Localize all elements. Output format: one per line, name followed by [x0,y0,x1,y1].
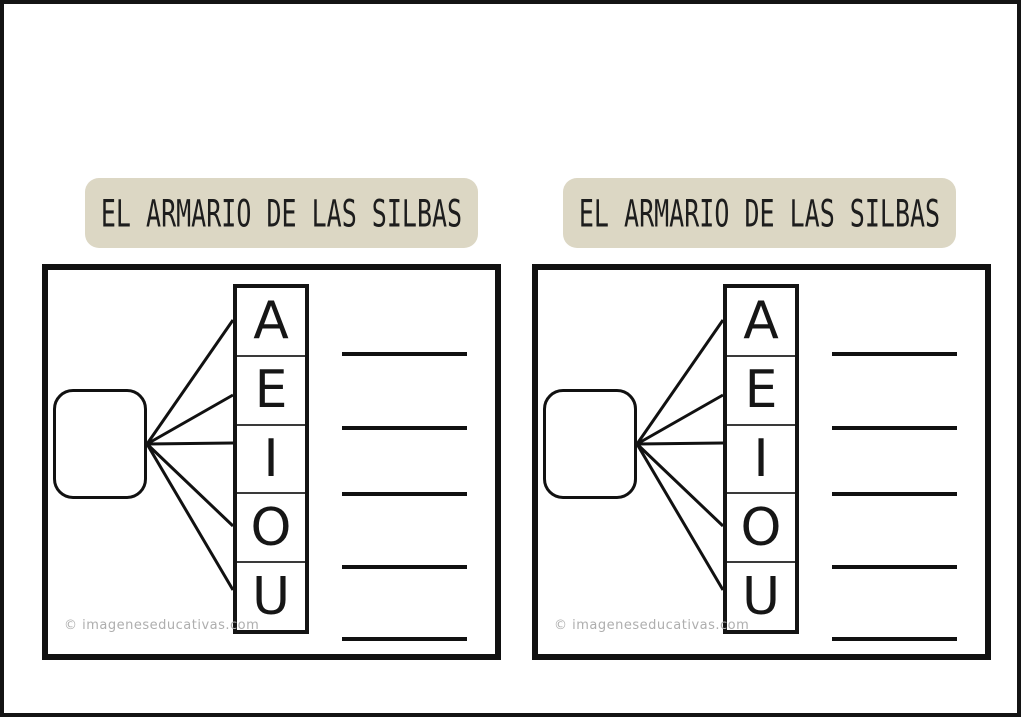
connector-line [147,444,233,526]
vowel-cell: I [237,424,305,493]
answer-line [832,637,957,641]
watermark: © imageneseducativas.com [554,618,749,633]
answer-line [342,352,467,356]
vowel-cell: O [727,492,795,561]
connector-line [147,444,233,590]
connector-line [637,395,723,444]
answer-line [342,565,467,569]
worksheet-title: EL ARMARIO DE LAS SILBAS [579,191,940,235]
answer-line [342,492,467,496]
title-banner: EL ARMARIO DE LAS SILBAS [85,178,478,248]
vowel-cell: I [727,424,795,493]
vowel-letter: I [263,433,278,485]
vowel-cell: O [237,492,305,561]
vowel-letter: E [255,364,288,416]
letter-card-slot [53,389,147,499]
vowel-letter: O [741,502,782,554]
letter-card-slot [543,389,637,499]
connector-line [637,320,723,444]
vowel-letter: E [745,364,778,416]
connector-line [147,443,233,444]
answer-line [342,426,467,430]
connector-line [637,444,723,526]
vowel-cell: E [727,355,795,424]
connector-line [147,395,233,444]
worksheet-panel: A E I O U © imageneseducativas.com [532,264,991,660]
worksheet-title: EL ARMARIO DE LAS SILBAS [101,191,462,235]
answer-line [342,637,467,641]
vowel-letter: I [753,433,768,485]
watermark: © imageneseducativas.com [64,618,259,633]
answer-line [832,565,957,569]
vowel-letter: A [253,295,289,347]
answer-line [832,492,957,496]
vowel-column: A E I O U [233,284,309,634]
title-banner: EL ARMARIO DE LAS SILBAS [563,178,956,248]
worksheet-page: EL ARMARIO DE LAS SILBAS EL ARMARIO DE L… [0,0,1024,724]
vowel-letter: U [252,571,290,623]
vowel-letter: A [743,295,779,347]
vowel-cell: A [727,288,795,355]
vowel-letter: O [251,502,292,554]
connector-line [147,320,233,444]
vowel-cell: A [237,288,305,355]
vowel-cell: E [237,355,305,424]
vowel-column: A E I O U [723,284,799,634]
answer-line [832,426,957,430]
answer-line [832,352,957,356]
connector-line [637,444,723,590]
worksheet-panel: A E I O U © imageneseducativas.com [42,264,501,660]
connector-line [637,443,723,444]
vowel-letter: U [742,571,780,623]
